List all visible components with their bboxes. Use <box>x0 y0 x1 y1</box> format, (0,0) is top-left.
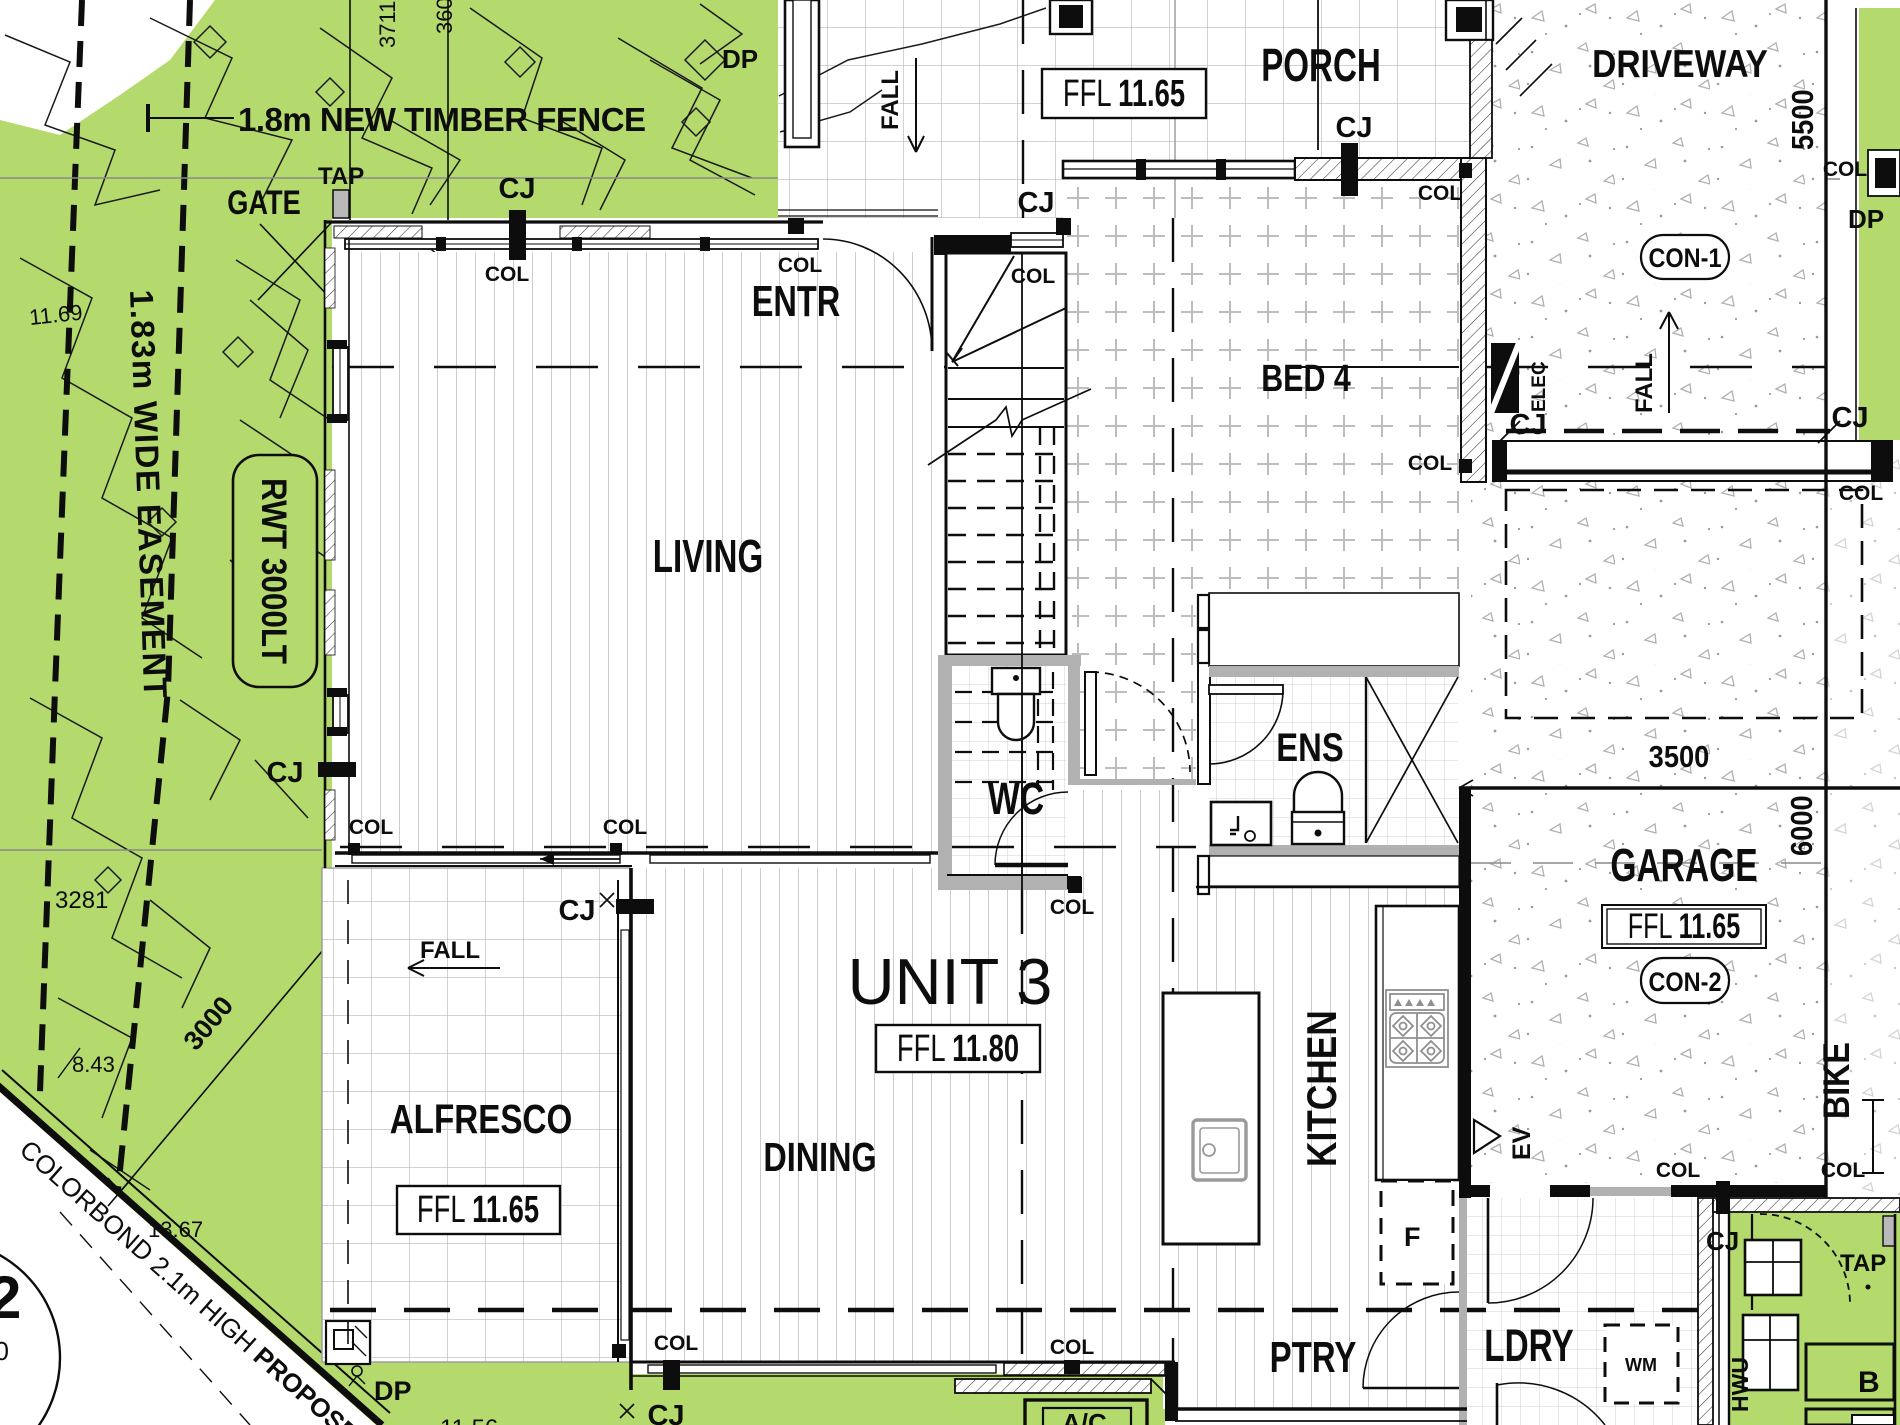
svg-text:B: B <box>1858 1366 1880 1399</box>
svg-text:WC: WC <box>988 774 1044 824</box>
svg-text:RWT 3000LT: RWT 3000LT <box>254 478 293 664</box>
svg-text:A/C: A/C <box>1062 1408 1107 1425</box>
svg-text:3711: 3711 <box>375 1 400 48</box>
svg-text:DRIVEWAY: DRIVEWAY <box>1592 42 1768 86</box>
svg-text:LIVING: LIVING <box>653 532 763 582</box>
svg-text:DP: DP <box>722 44 758 74</box>
svg-text:ELEC: ELEC <box>1529 361 1550 412</box>
svg-text:6000: 6000 <box>1785 795 1819 856</box>
svg-text:COL: COL <box>349 816 394 839</box>
svg-text:KITCHEN: KITCHEN <box>1299 1010 1346 1167</box>
svg-text:CJ: CJ <box>647 1400 684 1425</box>
svg-text:F: F <box>1404 1222 1421 1252</box>
svg-text:COL: COL <box>1011 265 1056 288</box>
svg-text:FFL 11.80: FFL 11.80 <box>897 1028 1019 1070</box>
svg-text:DINING: DINING <box>763 1134 876 1179</box>
svg-text:FALL: FALL <box>420 937 480 964</box>
svg-text:TAP: TAP <box>318 163 364 190</box>
svg-text:8.43: 8.43 <box>72 1052 115 1077</box>
svg-text:COL: COL <box>1656 1159 1701 1182</box>
svg-text:COL: COL <box>603 816 648 839</box>
svg-text:CJ: CJ <box>266 757 303 789</box>
svg-text:2: 2 <box>0 1264 21 1331</box>
svg-text:COL: COL <box>1050 1336 1095 1359</box>
svg-text:COL: COL <box>1418 182 1463 205</box>
svg-text:COL: COL <box>485 263 530 286</box>
svg-text:BIKE: BIKE <box>1817 1042 1858 1119</box>
svg-text:FALL: FALL <box>877 70 904 130</box>
svg-text:LDRY: LDRY <box>1484 1321 1573 1371</box>
svg-text:CJ: CJ <box>1509 409 1546 441</box>
svg-text:PTRY: PTRY <box>1270 1334 1357 1383</box>
svg-text:HWU: HWU <box>1727 1357 1753 1412</box>
svg-text:ENS: ENS <box>1276 725 1343 770</box>
svg-text:ALFRESCO: ALFRESCO <box>390 1096 573 1142</box>
svg-text:CJ: CJ <box>498 173 535 205</box>
svg-text:3500: 3500 <box>1649 740 1710 774</box>
svg-text:CON-1: CON-1 <box>1648 244 1721 274</box>
svg-text:COL: COL <box>1821 1159 1866 1182</box>
svg-text:CJ: CJ <box>1706 1226 1739 1256</box>
svg-text:CJ: CJ <box>1017 187 1054 219</box>
svg-text:11.56: 11.56 <box>440 1415 498 1425</box>
svg-text:FALL: FALL <box>1631 353 1658 413</box>
svg-text:TAP: TAP <box>1840 1250 1886 1277</box>
svg-text:ENTR: ENTR <box>752 277 841 326</box>
svg-text:WM: WM <box>1625 1355 1657 1375</box>
svg-text:COL: COL <box>1050 896 1095 919</box>
svg-text:UNIT 3: UNIT 3 <box>848 945 1053 1018</box>
svg-text:COL: COL <box>1823 158 1868 181</box>
svg-text:1.8m NEW TIMBER FENCE: 1.8m NEW TIMBER FENCE <box>238 101 646 138</box>
svg-text:COL: COL <box>1839 482 1884 505</box>
svg-text:COL: COL <box>654 1332 699 1355</box>
svg-text:GARAGE: GARAGE <box>1610 840 1757 891</box>
svg-text:3605: 3605 <box>432 0 457 34</box>
svg-text:GATE: GATE <box>227 183 300 222</box>
svg-text:5500: 5500 <box>1786 89 1820 150</box>
svg-text:FFL 11.65: FFL 11.65 <box>1063 73 1185 115</box>
svg-text:FFL 11.65: FFL 11.65 <box>1628 907 1741 946</box>
svg-text:EV: EV <box>1508 1126 1536 1160</box>
svg-text:3281: 3281 <box>55 887 108 914</box>
svg-text:CJ: CJ <box>558 895 595 927</box>
svg-text:00: 00 <box>0 1336 9 1366</box>
svg-text:COL: COL <box>1408 452 1453 475</box>
svg-text:DP: DP <box>374 1376 412 1406</box>
svg-text:COL: COL <box>778 254 823 277</box>
svg-text:CJ: CJ <box>1831 402 1868 434</box>
svg-text:DP: DP <box>1848 204 1884 234</box>
svg-text:CJ: CJ <box>1335 112 1372 144</box>
svg-text:FFL 11.65: FFL 11.65 <box>417 1189 539 1231</box>
svg-text:PORCH: PORCH <box>1261 41 1381 91</box>
svg-text:BED 4: BED 4 <box>1261 358 1351 400</box>
svg-text:CON-2: CON-2 <box>1648 968 1721 998</box>
